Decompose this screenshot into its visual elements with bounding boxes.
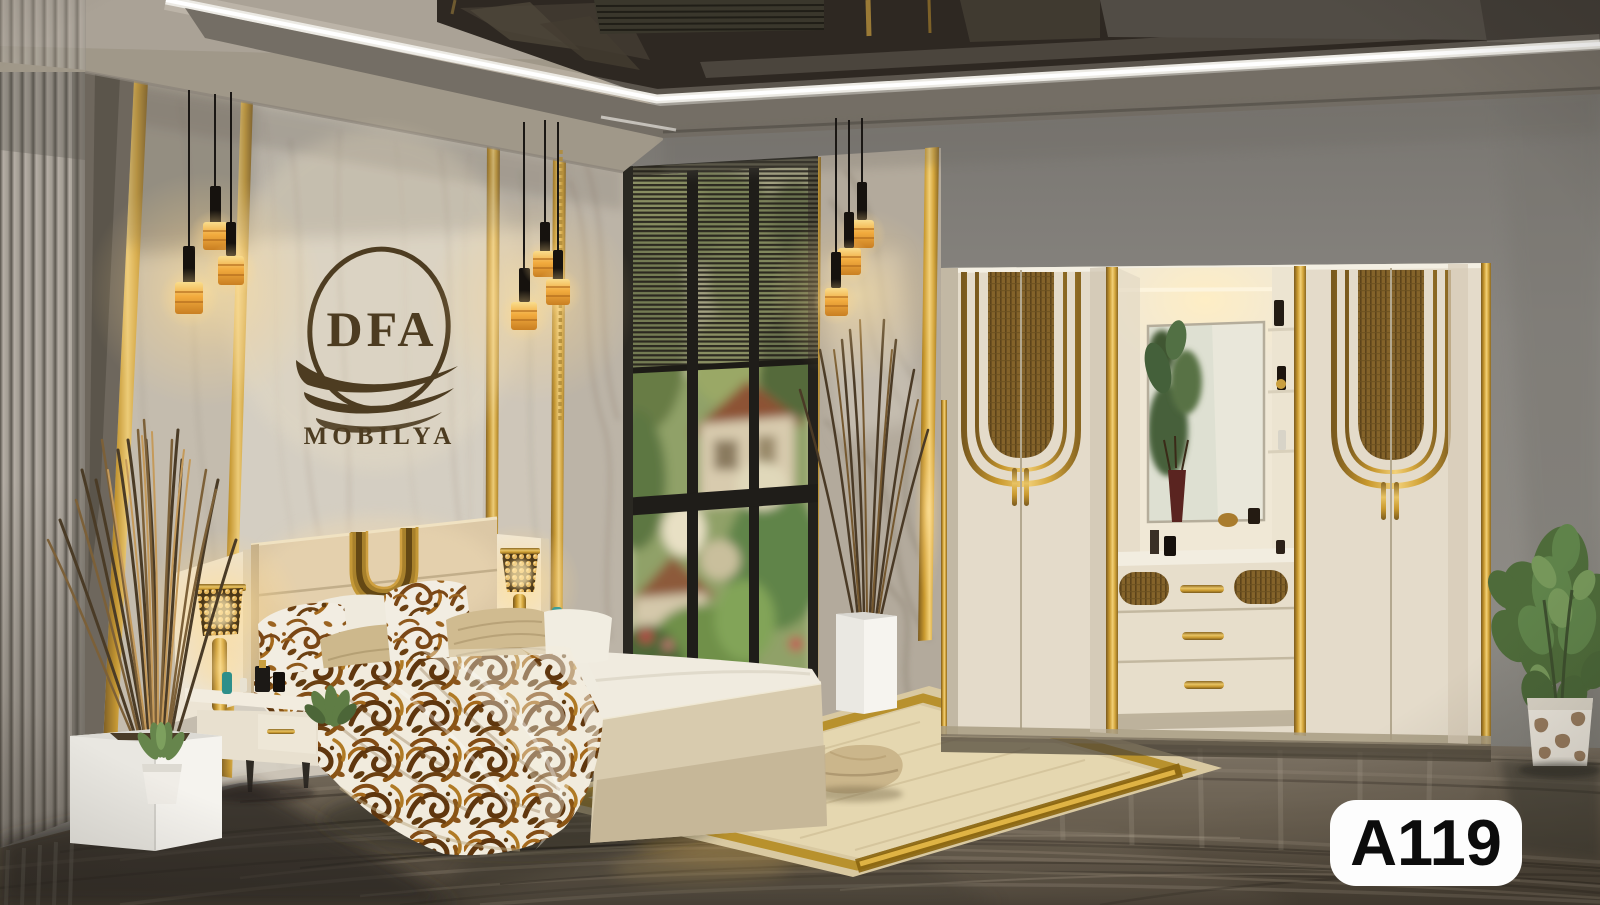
svg-text:A119: A119 <box>1350 806 1502 879</box>
